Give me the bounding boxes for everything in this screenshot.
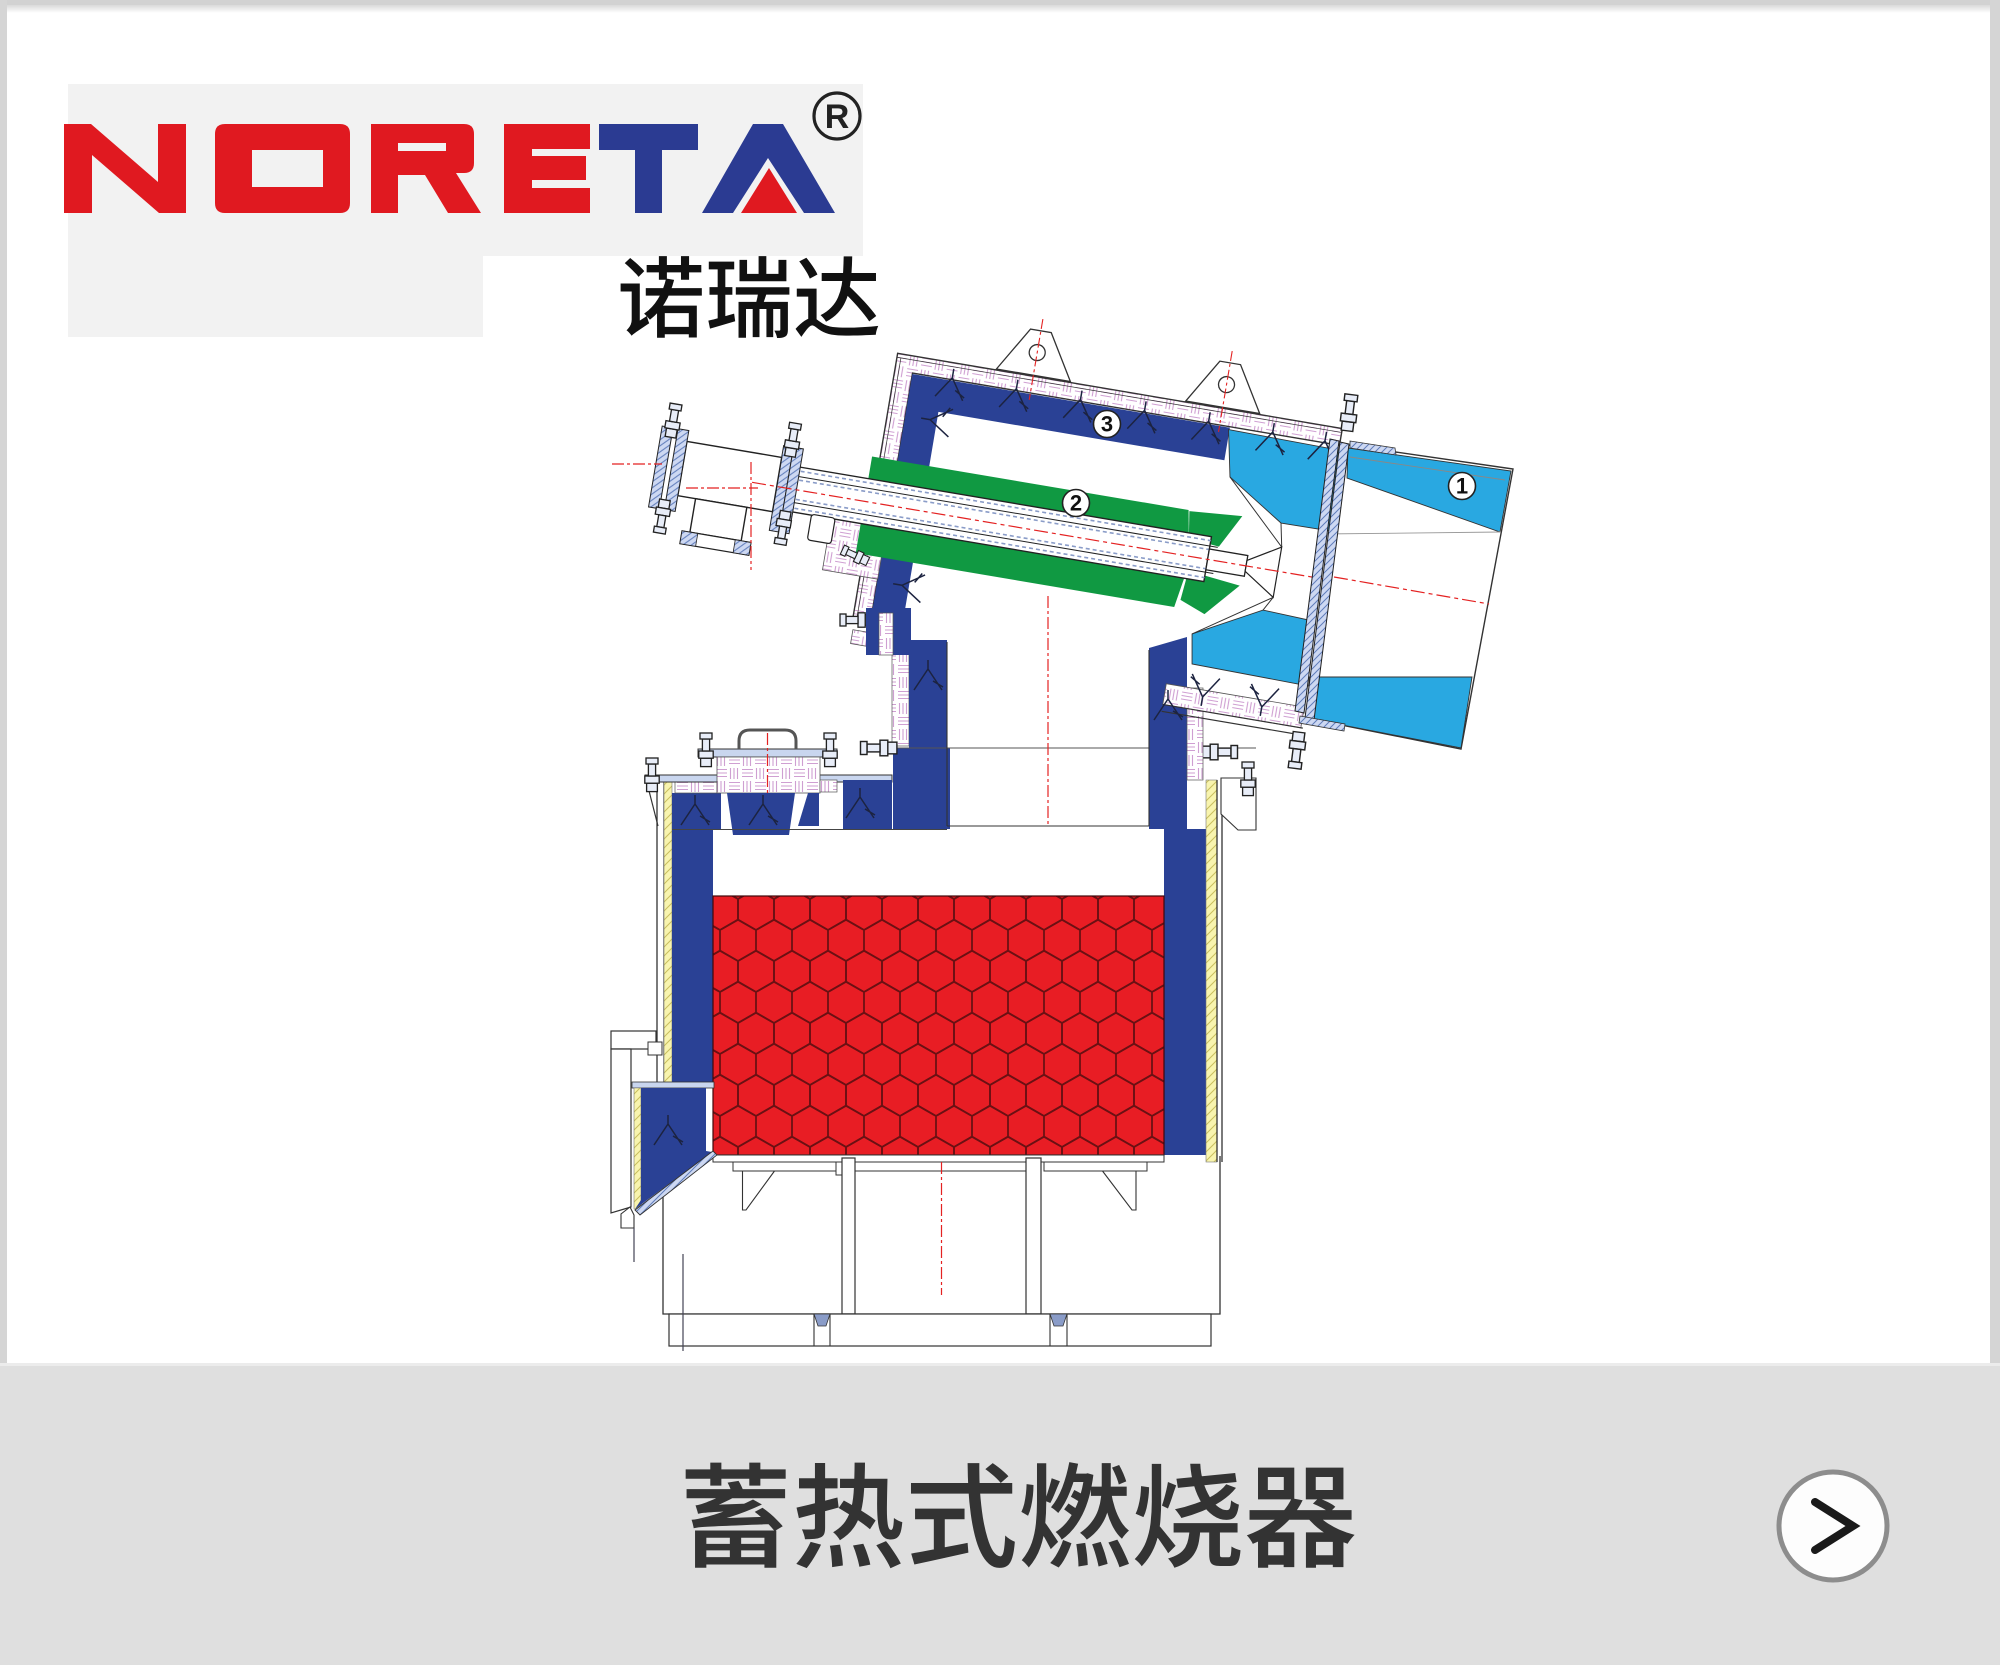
svg-text:1: 1 [1456, 474, 1468, 499]
svg-text:3: 3 [1101, 412, 1113, 437]
svg-text:2: 2 [1070, 491, 1082, 516]
svg-text:R: R [825, 98, 850, 136]
